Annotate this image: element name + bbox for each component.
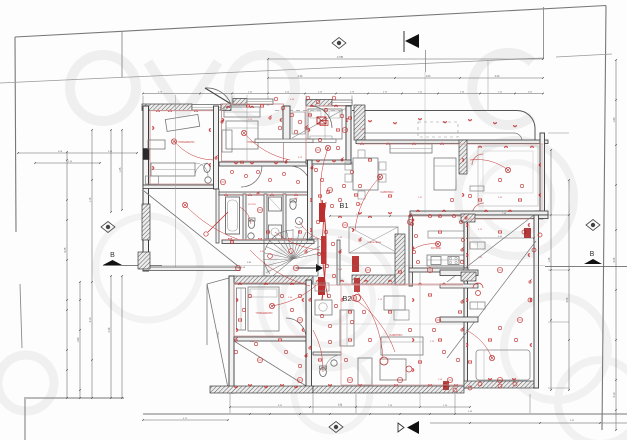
svg-text:3.10: 3.10 [89,317,92,322]
svg-text:1.63: 1.63 [426,75,431,78]
svg-text:ΤΡΑΠΕΖΑΡΙΑ: ΤΡΑΠΕΖΑΡΙΑ [367,241,381,244]
svg-text:ΛΟΥΤΡΟ: ΛΟΥΤΡΟ [248,204,257,206]
svg-text:1.80: 1.80 [613,117,616,122]
svg-text:B: B [590,251,595,258]
svg-text:1.15: 1.15 [89,197,92,202]
svg-text:5.25: 5.25 [613,257,616,262]
svg-text:ΚΑΘΙΣΤΙΚΟ: ΚΑΘΙΣΤΙΚΟ [390,334,403,337]
svg-text:4.30: 4.30 [298,75,303,78]
svg-text:ΚΟΥΖΙΝΑ: ΚΟΥΖΙΝΑ [431,247,441,250]
svg-text:3.20: 3.20 [495,75,500,78]
svg-text:1.45: 1.45 [119,167,122,172]
svg-text:WC: WC [294,198,298,200]
svg-text:CL/THE: CL/THE [218,331,220,339]
svg-text:B2: B2 [342,294,351,303]
svg-text:B: B [110,252,115,259]
svg-text:17.85: 17.85 [337,56,344,59]
svg-text:B1: B1 [339,201,348,210]
svg-text:1.48: 1.48 [548,257,551,262]
svg-text:6.45: 6.45 [64,247,67,252]
svg-text:1.80: 1.80 [77,337,80,342]
svg-text:ΥΠΝΟΔΩΜΑΤΙΟ: ΥΠΝΟΔΩΜΑΤΙΟ [178,141,195,144]
svg-text:5.10: 5.10 [613,392,616,397]
svg-text:2.48: 2.48 [108,327,111,332]
svg-text:5.25: 5.25 [566,297,569,302]
svg-text:ΚΑΘΙΣΤΙΚΟ: ΚΑΘΙΣΤΙΚΟ [381,191,394,194]
svg-text:ΥΠΝΟΔΩΜΑΤΙΟ: ΥΠΝΟΔΩΜΑΤΙΟ [256,312,273,315]
